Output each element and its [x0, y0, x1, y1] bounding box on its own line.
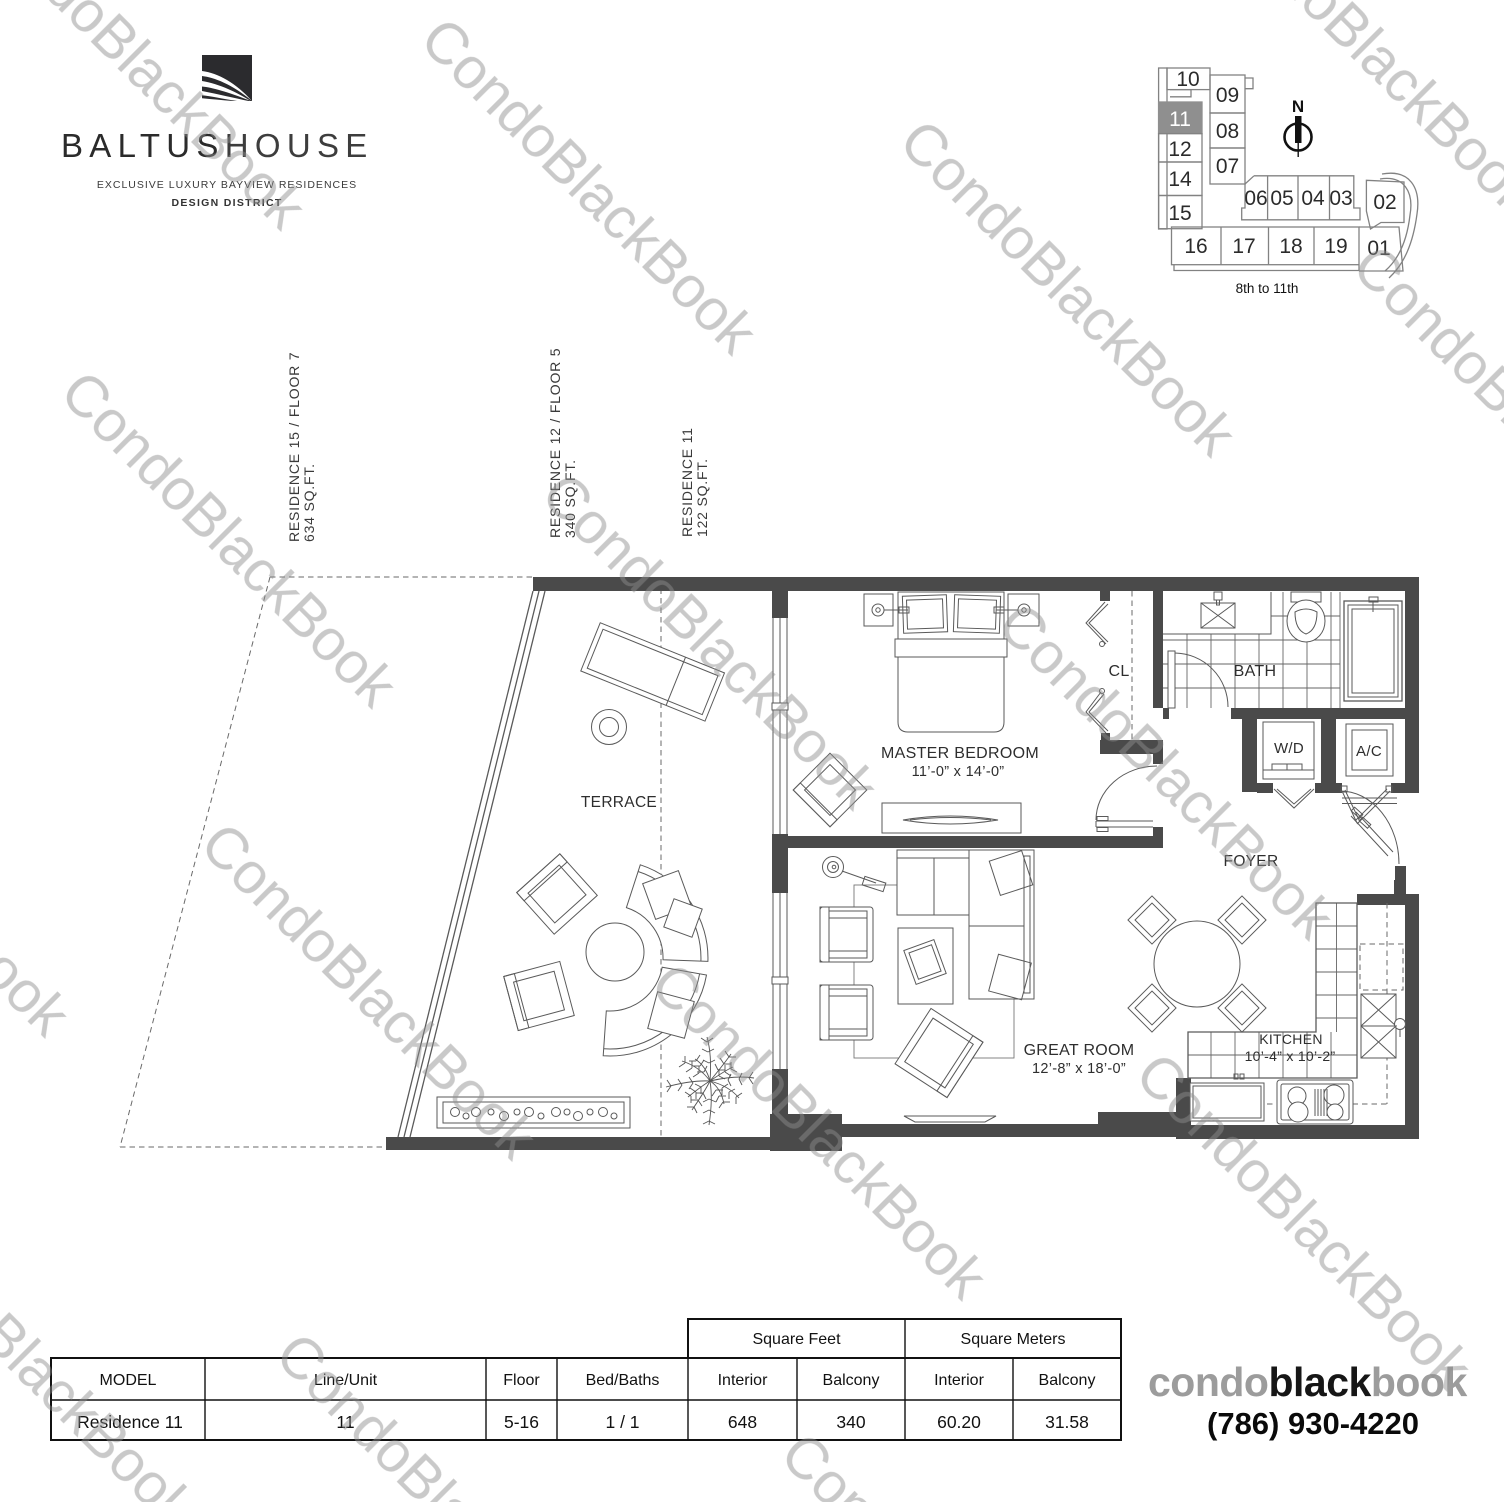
- svg-text:Square Meters: Square Meters: [961, 1331, 1066, 1348]
- svg-text:03: 03: [1329, 187, 1352, 210]
- svg-text:340: 340: [836, 1412, 865, 1432]
- svg-text:N: N: [1292, 97, 1304, 116]
- svg-text:5-16: 5-16: [504, 1412, 539, 1432]
- svg-text:17: 17: [1232, 235, 1255, 258]
- svg-text:02: 02: [1373, 191, 1396, 214]
- svg-text:Balcony: Balcony: [823, 1372, 880, 1389]
- svg-text:04: 04: [1301, 187, 1325, 210]
- svg-text:05: 05: [1270, 187, 1293, 210]
- svg-text:MODEL: MODEL: [100, 1372, 157, 1389]
- svg-text:06: 06: [1244, 187, 1267, 210]
- svg-text:11’-0” x 14’-0”: 11’-0” x 14’-0”: [912, 764, 1005, 780]
- svg-text:18: 18: [1279, 235, 1302, 258]
- svg-text:60.20: 60.20: [937, 1412, 981, 1432]
- svg-text:RESIDENCE 11: RESIDENCE 11: [679, 427, 695, 537]
- svg-text:10’-4” x 10’-2”: 10’-4” x 10’-2”: [1245, 1048, 1336, 1064]
- svg-text:Square Feet: Square Feet: [752, 1331, 841, 1348]
- svg-text:31.58: 31.58: [1045, 1412, 1089, 1432]
- svg-text:07: 07: [1216, 155, 1239, 178]
- svg-text:(786) 930-4220: (786) 930-4220: [1207, 1406, 1419, 1441]
- svg-text:8th to 11th: 8th to 11th: [1236, 281, 1299, 296]
- svg-text:122 SQ.FT.: 122 SQ.FT.: [694, 458, 710, 537]
- svg-text:14: 14: [1168, 168, 1192, 191]
- svg-text:10: 10: [1176, 68, 1199, 91]
- svg-text:648: 648: [728, 1412, 757, 1432]
- svg-text:15: 15: [1168, 202, 1191, 225]
- svg-text:634 SQ.FT.: 634 SQ.FT.: [301, 463, 317, 542]
- svg-text:RESIDENCE 15 / FLOOR 7: RESIDENCE 15 / FLOOR 7: [286, 352, 302, 542]
- svg-text:Balcony: Balcony: [1039, 1372, 1096, 1389]
- svg-text:Interior: Interior: [934, 1372, 984, 1389]
- svg-text:09: 09: [1216, 84, 1239, 107]
- svg-text:MASTER BEDROOM: MASTER BEDROOM: [881, 745, 1039, 762]
- svg-text:16: 16: [1184, 235, 1207, 258]
- svg-text:12’-8” x 18’-0”: 12’-8” x 18’-0”: [1032, 1061, 1126, 1077]
- svg-text:12: 12: [1168, 138, 1191, 161]
- svg-text:KITCHEN: KITCHEN: [1259, 1031, 1323, 1047]
- svg-text:Floor: Floor: [503, 1372, 540, 1389]
- svg-text:19: 19: [1324, 235, 1347, 258]
- svg-text:Interior: Interior: [718, 1372, 768, 1389]
- svg-text:11: 11: [1169, 108, 1191, 131]
- svg-text:BATH: BATH: [1234, 663, 1277, 680]
- svg-text:08: 08: [1216, 120, 1239, 143]
- svg-text:1 / 1: 1 / 1: [605, 1412, 639, 1432]
- svg-text:GREAT ROOM: GREAT ROOM: [1024, 1042, 1135, 1059]
- svg-text:W/D: W/D: [1274, 740, 1304, 757]
- svg-text:Bed/Baths: Bed/Baths: [586, 1372, 660, 1389]
- svg-text:TERRACE: TERRACE: [581, 794, 657, 811]
- svg-text:A/C: A/C: [1356, 743, 1382, 760]
